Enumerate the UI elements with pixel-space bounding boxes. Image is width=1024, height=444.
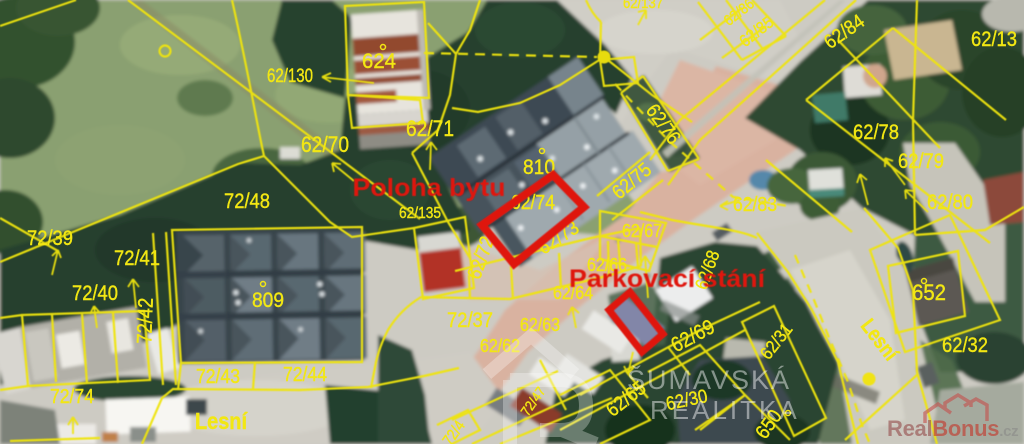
svg-text:72/39: 72/39 [27,227,73,250]
svg-text:62/83: 62/83 [733,194,777,216]
svg-text:62/78: 62/78 [853,121,899,144]
svg-text:652: 652 [912,280,946,305]
svg-text:809: 809 [252,289,284,312]
svg-text:72/43: 72/43 [196,366,240,388]
svg-text:72/41: 72/41 [114,247,160,270]
svg-text:62/80: 62/80 [927,191,973,214]
svg-text:72/74: 72/74 [50,386,94,408]
svg-text:Parkovací stání: Parkovací stání [569,265,766,293]
svg-text:72/42: 72/42 [133,297,158,344]
svg-text:62/135: 62/135 [399,205,441,222]
svg-text:72/37: 72/37 [447,309,493,332]
svg-text:Poloha bytu: Poloha bytu [353,174,506,202]
svg-text:62/71: 62/71 [406,116,454,141]
svg-text:72/44: 72/44 [283,364,327,386]
svg-text:62/13: 62/13 [971,28,1017,51]
svg-text:62/130: 62/130 [267,66,313,87]
svg-text:REALITKA: REALITKA [650,395,800,425]
svg-text:62/79: 62/79 [898,150,944,173]
svg-text:62/70: 62/70 [301,132,349,157]
svg-text:72/48: 72/48 [224,190,270,213]
svg-text:624: 624 [362,50,396,73]
svg-text:62/32: 62/32 [942,334,988,357]
svg-text:ŠUMAVSKÁ: ŠUMAVSKÁ [627,364,791,395]
svg-text:62/137: 62/137 [623,0,663,12]
svg-text:62/67: 62/67 [622,221,662,241]
svg-text:RealBonus.cz: RealBonus.cz [887,416,1018,441]
svg-text:Lesní: Lesní [195,408,248,434]
svg-text:72/40: 72/40 [72,282,118,305]
